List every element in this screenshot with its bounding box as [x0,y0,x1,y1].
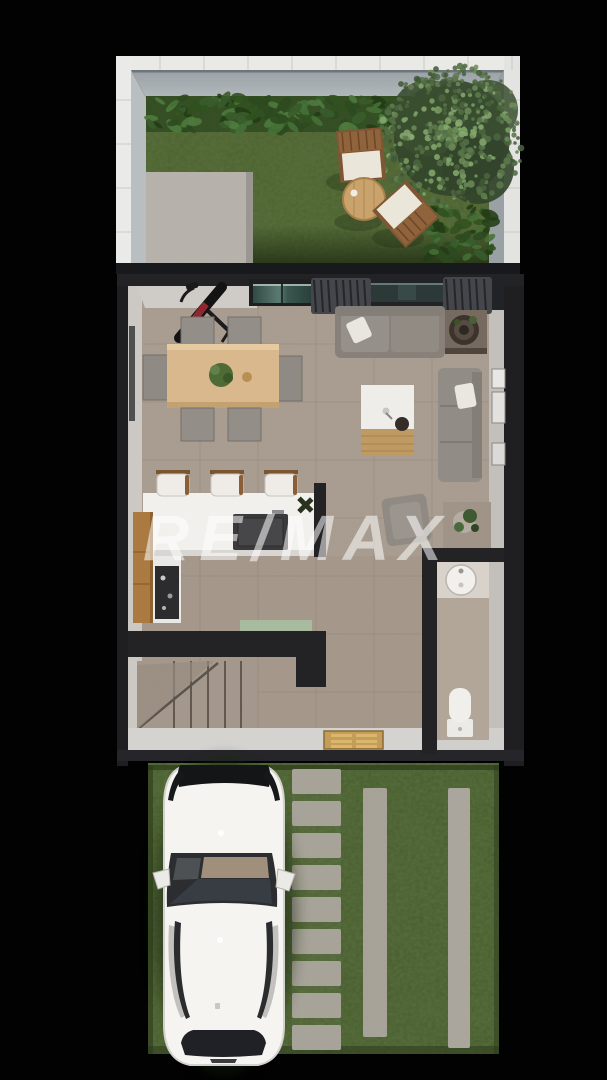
svg-text:RE/MAX: RE/MAX [143,502,452,574]
